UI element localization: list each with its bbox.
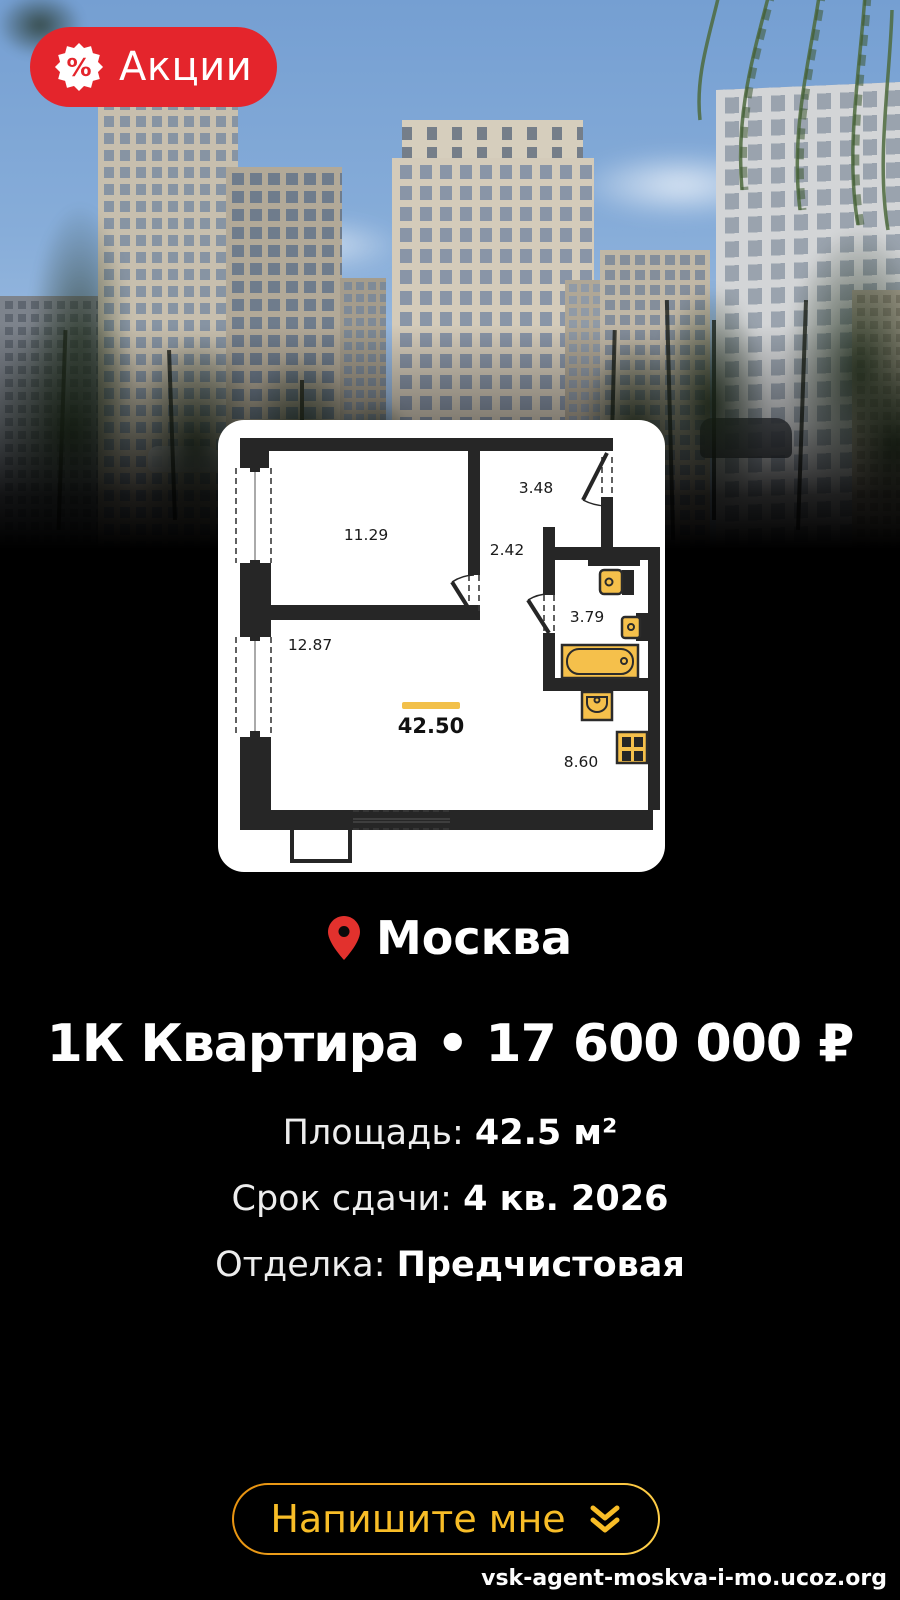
listing-title: 1К Квартира • 17 600 000 ₽	[0, 1014, 900, 1074]
plan-toilet	[600, 570, 622, 594]
room-area-label: 11.29	[344, 526, 388, 544]
floor-plan: 11.29 3.48 2.42 3.79 12.87 8.60 42.50	[218, 420, 665, 872]
plan-fixtures	[562, 570, 647, 763]
room-area-label: 8.60	[564, 753, 599, 771]
plan-window-glazing	[255, 468, 450, 822]
spec-area: Площадь: 42.5 м²	[0, 1112, 900, 1154]
floor-plan-card: 11.29 3.48 2.42 3.79 12.87 8.60 42.50	[218, 420, 665, 872]
spec-deadline: Срок сдачи: 4 кв. 2026	[0, 1178, 900, 1220]
plan-sink	[622, 617, 640, 638]
spec-finishing: Отделка: Предчистовая	[0, 1244, 900, 1286]
write-me-button-label: Напишите мне	[270, 1497, 565, 1541]
spec-value: 42.5 м²	[475, 1113, 617, 1153]
watermark-url: vsk-agent-moskva-i-mo.ucoz.org	[481, 1566, 887, 1591]
plan-balcony	[292, 828, 350, 861]
promo-badge-label: Акции	[119, 44, 252, 90]
promo-badge[interactable]: % Акции	[30, 27, 277, 107]
spec-list: Площадь: 42.5 м² Срок сдачи: 4 кв. 2026 …	[0, 1112, 900, 1310]
total-area-label: 42.50	[398, 714, 464, 738]
city-label: Москва	[376, 911, 572, 965]
room-area-label: 2.42	[490, 541, 525, 559]
spec-label: Отделка:	[215, 1245, 385, 1285]
spec-value: Предчистовая	[397, 1245, 685, 1285]
spec-value: 4 кв. 2026	[463, 1179, 668, 1219]
plan-walls	[240, 438, 660, 830]
ad-story: % Акции	[0, 0, 900, 1600]
spec-label: Срок сдачи:	[232, 1179, 452, 1219]
write-me-button[interactable]: Напишите мне	[232, 1483, 660, 1555]
total-area-underline	[402, 702, 460, 709]
location-row: Москва	[0, 908, 900, 968]
location-pin-icon	[328, 916, 360, 960]
spec-label: Площадь:	[283, 1113, 464, 1153]
percent-badge-icon: %	[54, 42, 104, 92]
room-area-label: 3.48	[519, 479, 554, 497]
double-chevron-down-icon	[588, 1504, 622, 1534]
percent-symbol: %	[66, 53, 91, 82]
room-area-label: 3.79	[570, 608, 605, 626]
room-area-label: 12.87	[288, 636, 332, 654]
